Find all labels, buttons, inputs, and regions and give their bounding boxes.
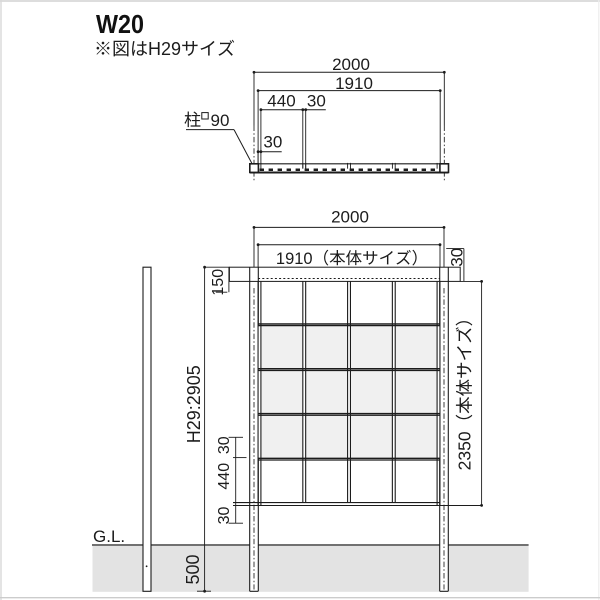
- svg-text:90: 90: [211, 111, 230, 130]
- svg-text:30: 30: [216, 436, 233, 454]
- svg-text:W20: W20: [96, 9, 144, 39]
- svg-text:440: 440: [267, 92, 295, 111]
- svg-text:440: 440: [216, 463, 233, 490]
- svg-text:G.L.: G.L.: [93, 527, 125, 546]
- svg-text:2000: 2000: [331, 208, 369, 227]
- svg-text:1910: 1910: [335, 74, 373, 93]
- svg-text:500: 500: [183, 554, 203, 584]
- svg-text:2000: 2000: [332, 55, 370, 74]
- svg-text:150: 150: [210, 269, 227, 296]
- svg-text:H29:2905: H29:2905: [184, 365, 204, 443]
- svg-text:H29: H29: [148, 39, 181, 59]
- svg-text:2350: 2350: [455, 431, 475, 470]
- svg-text:1910: 1910: [276, 250, 313, 268]
- svg-text:30: 30: [307, 92, 326, 111]
- svg-text:30: 30: [263, 133, 282, 152]
- svg-text:30: 30: [216, 507, 233, 525]
